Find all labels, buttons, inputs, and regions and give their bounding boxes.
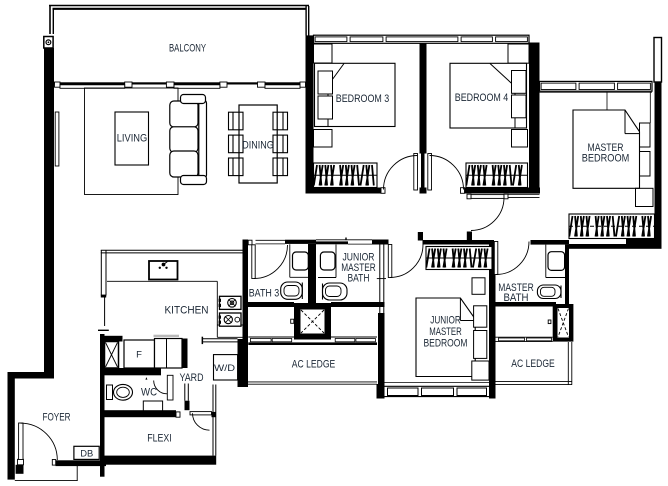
svg-text:MASTER: MASTER	[429, 326, 462, 338]
svg-text:AC LEDGE: AC LEDGE	[511, 358, 555, 370]
svg-text:WC: WC	[141, 387, 157, 399]
svg-text:KITCHEN: KITCHEN	[165, 305, 209, 317]
svg-text:FLEXI: FLEXI	[147, 433, 172, 445]
svg-text:BEDROOM: BEDROOM	[424, 338, 468, 350]
svg-text:W/D: W/D	[214, 363, 236, 373]
svg-text:BATH 3: BATH 3	[249, 287, 280, 299]
svg-text:JUNIOR: JUNIOR	[430, 315, 461, 327]
svg-text:AC LEDGE: AC LEDGE	[292, 359, 336, 371]
svg-text:BEDROOM 3: BEDROOM 3	[336, 93, 390, 105]
svg-text:BATH: BATH	[348, 273, 370, 285]
svg-text:F: F	[136, 350, 142, 361]
svg-text:BATH: BATH	[504, 292, 529, 304]
svg-text:FOYER: FOYER	[43, 412, 71, 424]
svg-text:LIVING: LIVING	[117, 133, 148, 145]
svg-text:DB: DB	[80, 448, 93, 458]
svg-text:BEDROOM 4: BEDROOM 4	[455, 92, 509, 104]
svg-text:DINING: DINING	[242, 140, 274, 152]
svg-text:YARD: YARD	[180, 372, 204, 384]
svg-text:BALCONY: BALCONY	[169, 43, 206, 55]
svg-text:BEDROOM: BEDROOM	[582, 153, 630, 165]
